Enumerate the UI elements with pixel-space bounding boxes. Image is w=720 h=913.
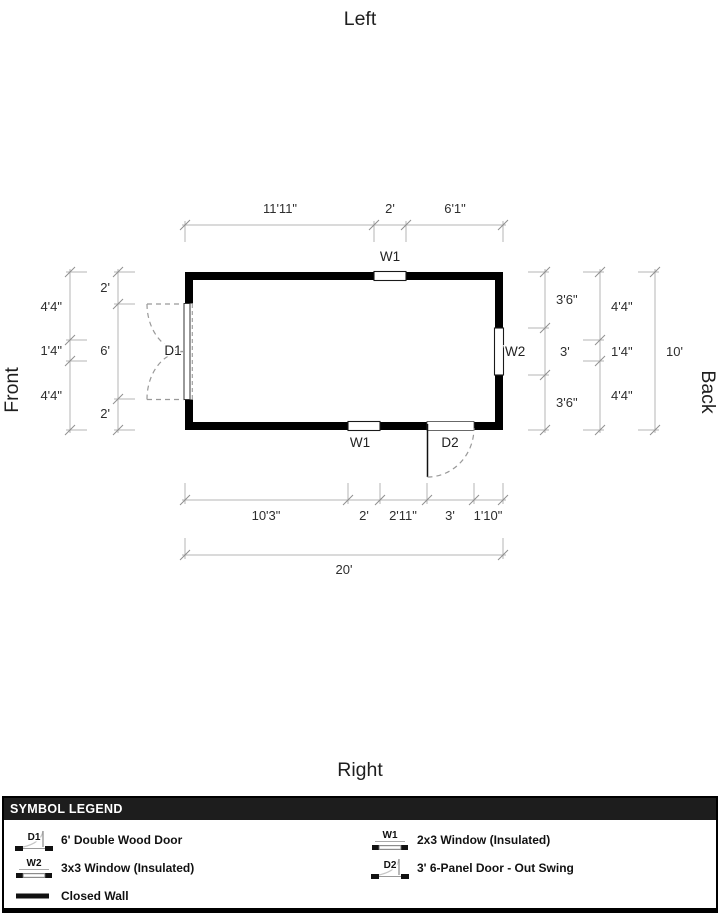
dimension-label: 2'11" bbox=[389, 508, 417, 523]
legend-item-label: 2x3 Window (Insulated) bbox=[417, 833, 550, 847]
symbol-legend: SYMBOL LEGEND D1 6' Double Wood Door bbox=[2, 796, 718, 913]
legend-item-closed-wall: Closed Wall bbox=[4, 882, 360, 910]
dimension-label: 6' bbox=[100, 343, 110, 358]
dimension-label: 3' bbox=[560, 344, 570, 359]
window-w2-label: W2 bbox=[505, 344, 525, 359]
legend-item-label: 6' Double Wood Door bbox=[61, 833, 182, 847]
window-w1-bottom-label: W1 bbox=[350, 435, 370, 450]
dimension-label: 4'4" bbox=[611, 299, 633, 314]
dimension-label: 20' bbox=[336, 562, 353, 577]
svg-text:D1: D1 bbox=[28, 832, 41, 843]
dimension-label: 3' bbox=[445, 508, 455, 523]
legend-item-w2: W2 3x3 Window (Insulated) bbox=[4, 854, 360, 882]
side-label-right: Back bbox=[697, 370, 719, 414]
side-label-top: Left bbox=[344, 8, 377, 30]
window-symbol-icon: W1 bbox=[371, 827, 409, 853]
window-w1-bottom bbox=[348, 422, 380, 431]
dimension-label: 4'4" bbox=[40, 388, 62, 403]
door-symbol-icon: D2 bbox=[371, 855, 409, 881]
dimension-line-right-outer bbox=[638, 267, 660, 435]
legend-header: SYMBOL LEGEND bbox=[4, 798, 716, 820]
window-w1-top-label: W1 bbox=[380, 249, 400, 264]
dimension-label: 4'4" bbox=[611, 388, 633, 403]
dimension-line-top bbox=[180, 220, 508, 242]
dimension-line-left-outer bbox=[65, 267, 87, 435]
svg-text:D2: D2 bbox=[384, 860, 397, 871]
dimension-line-bottom-outer bbox=[180, 538, 508, 560]
floorplan-drawing: Left Right Front Back 11'11" 2' 6'1" 4'4… bbox=[0, 0, 720, 796]
dimension-line-right-mid bbox=[583, 267, 605, 435]
window-w2-right bbox=[495, 328, 504, 375]
closed-wall-icon bbox=[15, 883, 53, 909]
door-d1-label: D1 bbox=[164, 343, 181, 358]
dimension-label: 1'4" bbox=[611, 344, 633, 359]
window-symbol-icon: W2 bbox=[15, 855, 53, 881]
legend-item-label: 3' 6-Panel Door - Out Swing bbox=[417, 861, 574, 875]
dimension-label: 3'6" bbox=[556, 292, 578, 307]
door-symbol-icon: D1 bbox=[15, 827, 53, 853]
legend-item-d2: D2 3' 6-Panel Door - Out Swing bbox=[360, 854, 716, 882]
dimension-label: 3'6" bbox=[556, 395, 578, 410]
legend-item-label: Closed Wall bbox=[61, 889, 129, 903]
closed-wall-outline bbox=[185, 272, 503, 430]
window-w1-top bbox=[374, 272, 406, 281]
dimension-label: 10'3" bbox=[252, 508, 281, 523]
dimension-label: 2' bbox=[359, 508, 369, 523]
dimension-label: 1'10" bbox=[474, 508, 503, 523]
dimension-label: 1'4" bbox=[40, 343, 62, 358]
dimension-label: 2' bbox=[385, 201, 395, 216]
svg-text:W2: W2 bbox=[27, 858, 42, 869]
dimension-label: 6'1" bbox=[444, 201, 466, 216]
floorplan-page: Left Right Front Back 11'11" 2' 6'1" 4'4… bbox=[0, 0, 720, 913]
dimension-line-right-inner bbox=[528, 267, 550, 435]
dimension-line-left-inner bbox=[113, 267, 135, 435]
side-label-bottom: Right bbox=[337, 759, 383, 781]
legend-item-w1: W1 2x3 Window (Insulated) bbox=[360, 826, 716, 854]
dimension-label: 10' bbox=[666, 344, 683, 359]
legend-item-label: 3x3 Window (Insulated) bbox=[61, 861, 194, 875]
svg-text:W1: W1 bbox=[383, 830, 398, 841]
dimension-line-bottom-inner bbox=[180, 483, 508, 505]
dimension-label: 4'4" bbox=[40, 299, 62, 314]
side-label-left: Front bbox=[1, 367, 23, 413]
dimension-label: 2' bbox=[100, 406, 110, 421]
door-d2-label: D2 bbox=[441, 435, 458, 450]
legend-title: SYMBOL LEGEND bbox=[10, 802, 123, 816]
legend-item-d1: D1 6' Double Wood Door bbox=[4, 826, 360, 854]
dimension-label: 11'11" bbox=[263, 201, 297, 216]
dimension-label: 2' bbox=[100, 280, 110, 295]
